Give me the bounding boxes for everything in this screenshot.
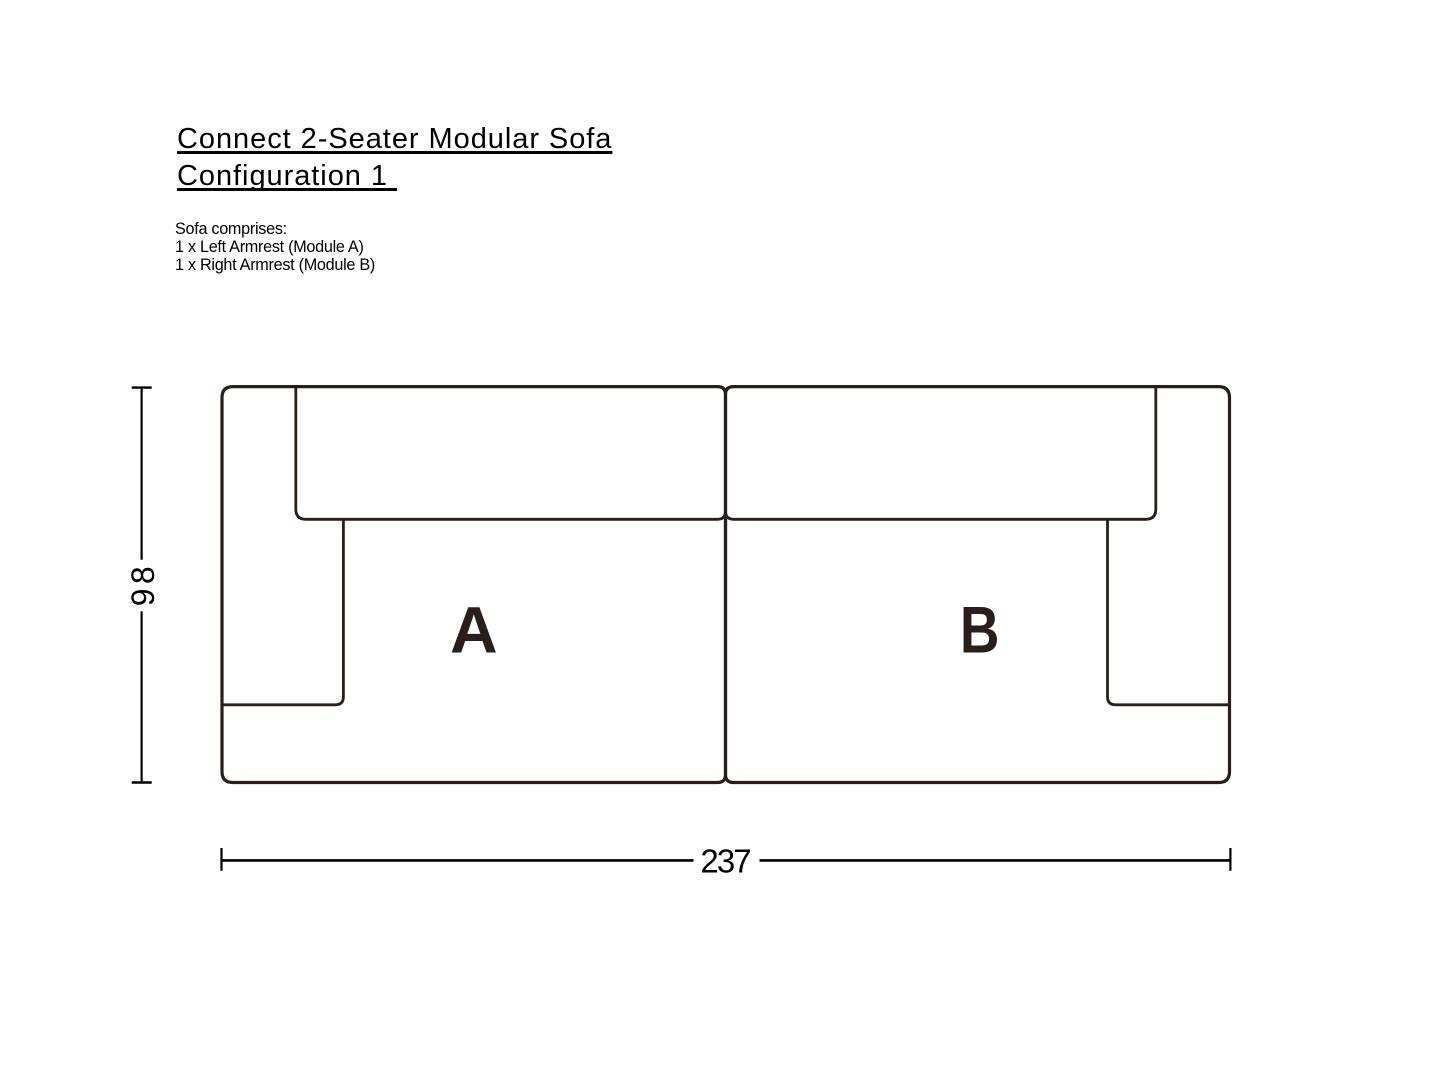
svg-text:B: B (960, 593, 1000, 667)
svg-text:98: 98 (125, 566, 161, 606)
svg-text:A: A (450, 593, 498, 667)
svg-text:237: 237 (700, 843, 751, 880)
